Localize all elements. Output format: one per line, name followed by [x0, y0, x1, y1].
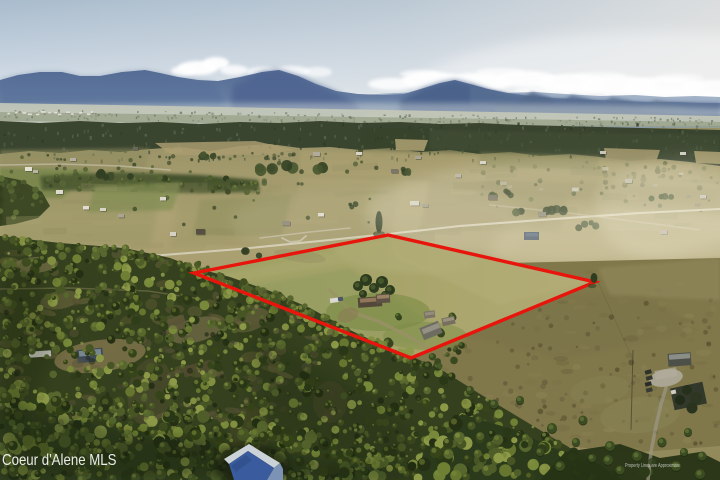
svg-text:Coeur d'Alene MLS: Coeur d'Alene MLS — [2, 452, 117, 469]
svg-text:Property Lines are Approximate: Property Lines are Approximate — [625, 463, 680, 469]
